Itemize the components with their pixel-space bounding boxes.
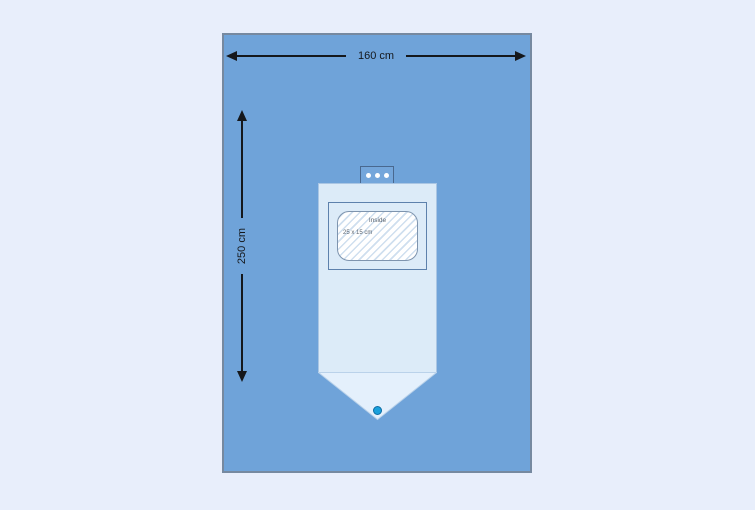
arrow-down-icon	[237, 371, 247, 382]
width-dimension: 160 cm	[226, 47, 526, 65]
pouch-tab	[360, 166, 394, 184]
drape-diagram: 160 cm 250 cm Inside 25 x 15 cm	[0, 0, 755, 510]
arrow-up-icon	[237, 110, 247, 121]
dimension-line	[241, 274, 243, 371]
height-dimension-label: 250 cm	[236, 218, 248, 274]
arrow-left-icon	[226, 51, 237, 61]
incise-window-label: Inside	[337, 217, 418, 224]
snap-dot-icon	[375, 173, 380, 178]
height-dimension: 250 cm	[233, 110, 251, 382]
dimension-line	[241, 121, 243, 218]
arrow-right-icon	[515, 51, 526, 61]
width-dimension-label: 160 cm	[346, 50, 406, 62]
dimension-line	[406, 55, 515, 57]
pouch-port-icon	[373, 406, 382, 415]
snap-dot-icon	[384, 173, 389, 178]
incise-window-size-label: 25 x 15 cm	[343, 230, 372, 236]
snap-dot-icon	[366, 173, 371, 178]
dimension-line	[237, 55, 346, 57]
